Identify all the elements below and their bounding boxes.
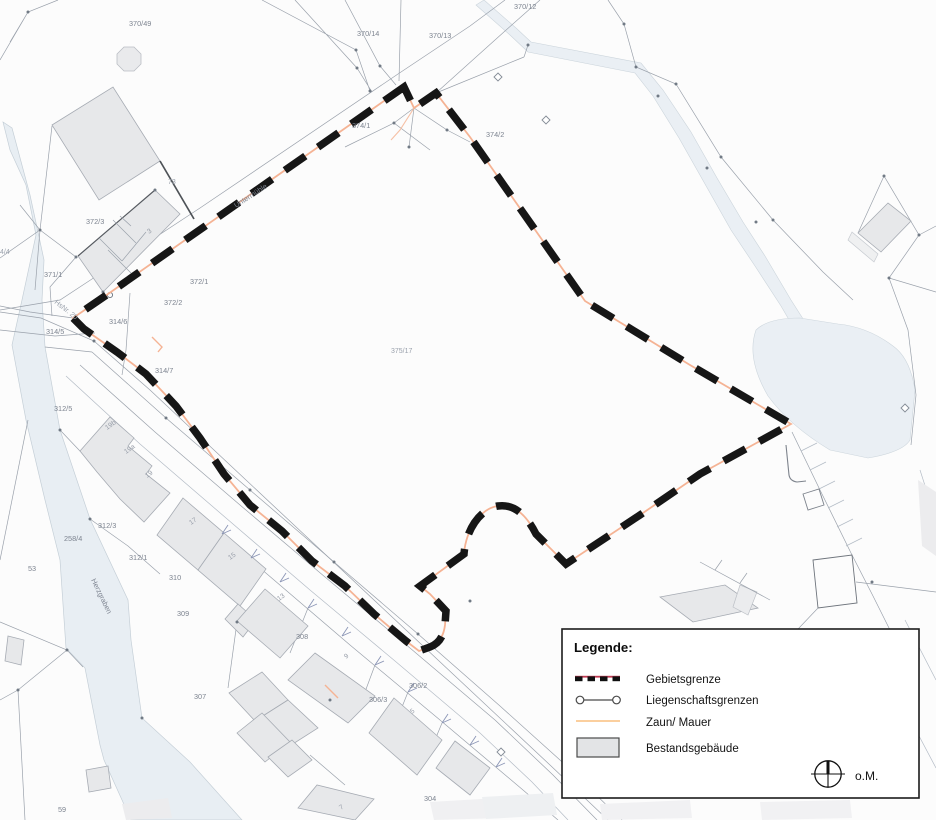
svg-text:370/49: 370/49 (129, 19, 151, 28)
svg-text:370/12: 370/12 (514, 2, 536, 11)
svg-text:374/2: 374/2 (486, 130, 504, 139)
svg-text:308: 308 (296, 632, 308, 641)
svg-text:306/2: 306/2 (409, 681, 427, 690)
svg-text:4/4: 4/4 (0, 249, 10, 256)
svg-text:310: 310 (169, 573, 181, 582)
svg-text:371/1: 371/1 (44, 270, 62, 279)
svg-text:372/1: 372/1 (190, 277, 208, 286)
svg-text:Legende:: Legende: (574, 640, 633, 655)
svg-text:306/3: 306/3 (369, 695, 387, 704)
svg-text:370/14: 370/14 (357, 29, 379, 38)
svg-text:312/1: 312/1 (129, 553, 147, 562)
svg-text:Gebietsgrenze: Gebietsgrenze (646, 674, 721, 686)
svg-text:312/3: 312/3 (98, 521, 116, 530)
svg-text:374/1: 374/1 (352, 121, 370, 130)
svg-text:370/13: 370/13 (429, 31, 451, 40)
svg-text:309: 309 (177, 609, 189, 618)
svg-text:372/3: 372/3 (86, 217, 104, 226)
svg-text:304: 304 (424, 794, 436, 803)
svg-text:375/17: 375/17 (391, 348, 413, 355)
svg-text:73: 73 (168, 179, 176, 186)
svg-text:o.M.: o.M. (855, 769, 878, 783)
svg-text:258/4: 258/4 (64, 534, 82, 543)
svg-text:312/5: 312/5 (54, 404, 72, 413)
svg-text:59: 59 (58, 805, 66, 814)
svg-text:314/5: 314/5 (46, 327, 64, 336)
svg-text:307: 307 (194, 692, 206, 701)
svg-text:Zaun/ Mauer: Zaun/ Mauer (646, 717, 711, 729)
svg-text:Liegenschaftsgrenzen: Liegenschaftsgrenzen (646, 695, 759, 707)
svg-text:314/6: 314/6 (109, 317, 127, 326)
svg-text:53: 53 (28, 564, 36, 573)
svg-text:372/2: 372/2 (164, 298, 182, 307)
svg-text:Bestandsgebäude: Bestandsgebäude (646, 743, 739, 755)
svg-text:314/7: 314/7 (155, 366, 173, 375)
